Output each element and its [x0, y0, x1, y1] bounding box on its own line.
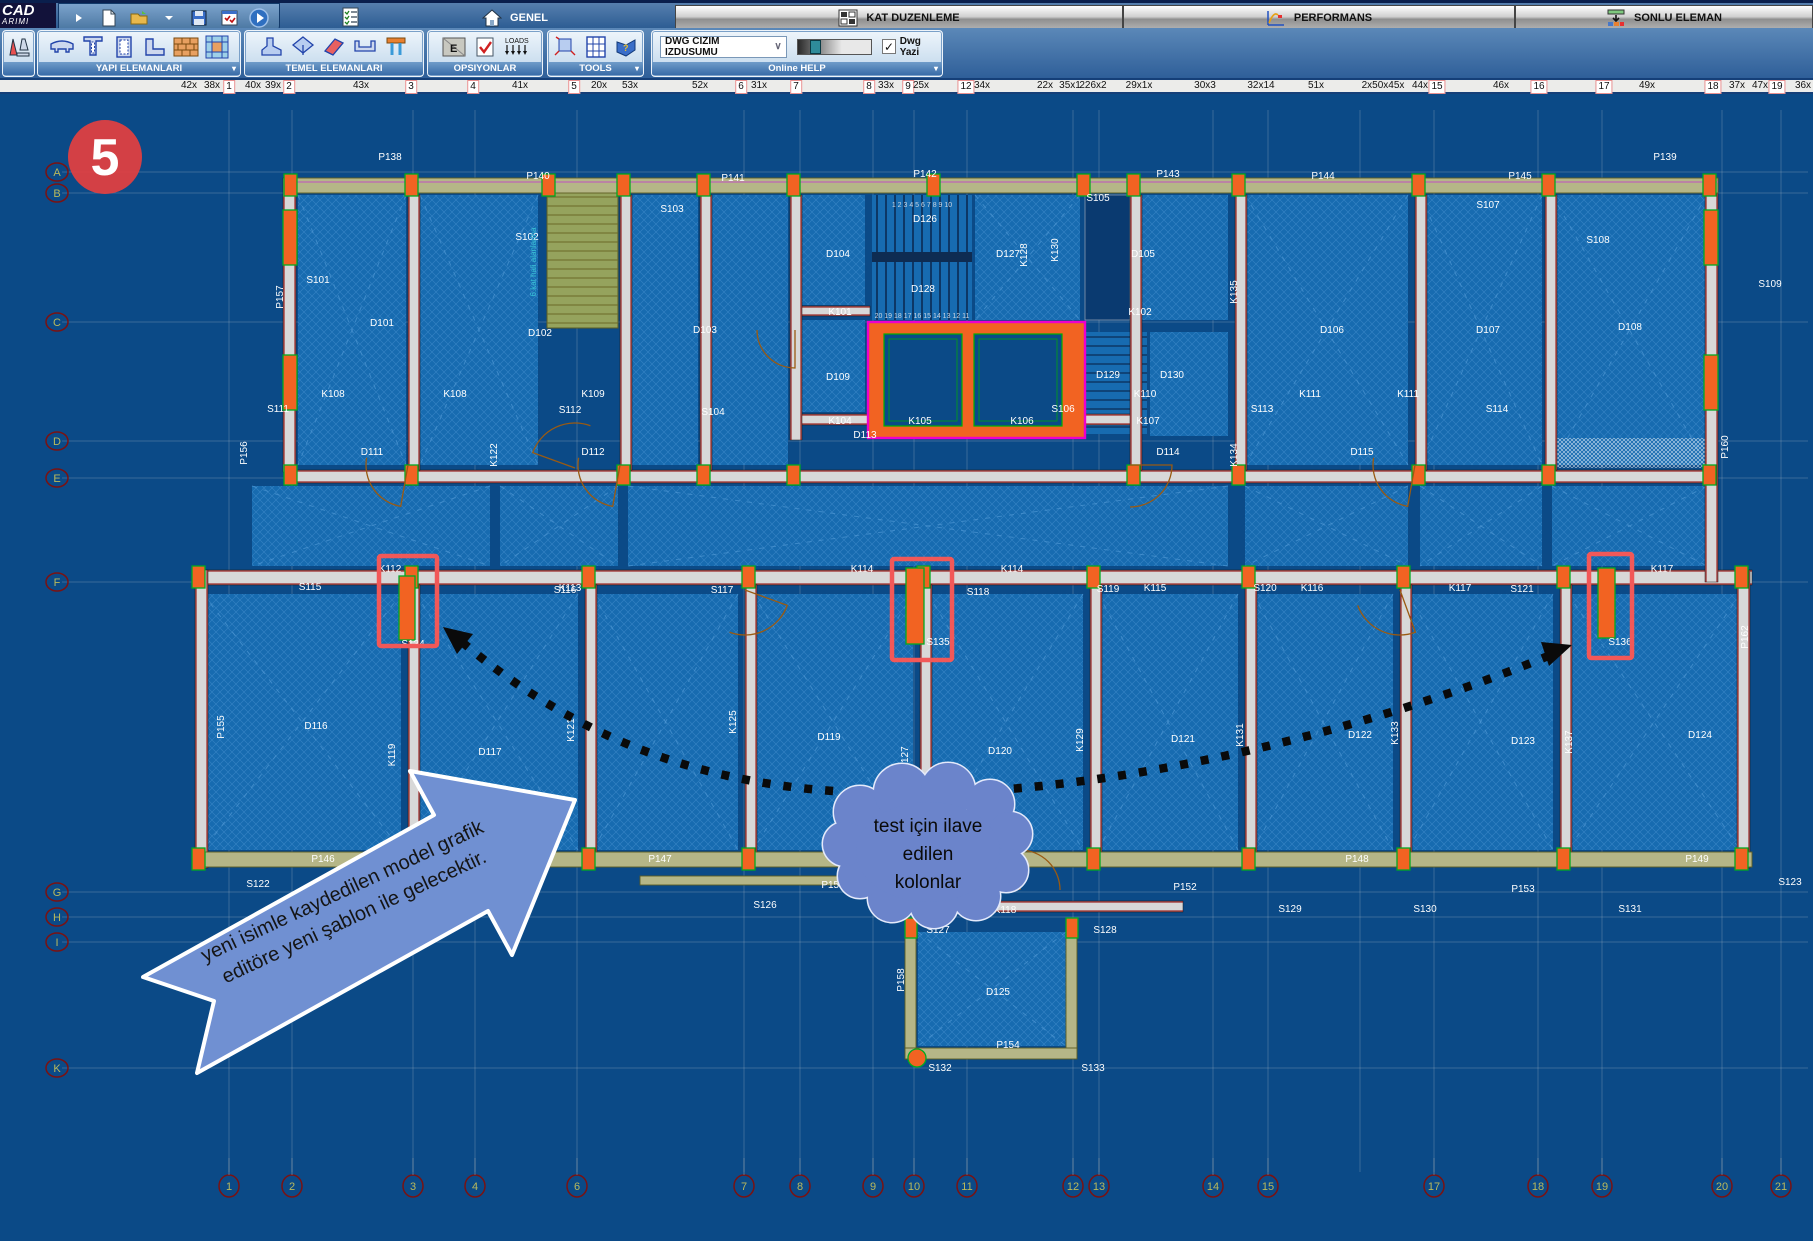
- svg-text:K107: K107: [1136, 416, 1160, 427]
- svg-text:S128: S128: [1093, 925, 1117, 936]
- svg-text:H: H: [53, 912, 61, 924]
- svg-text:D126: D126: [913, 214, 937, 225]
- svg-text:D112: D112: [581, 447, 605, 458]
- svg-text:D109: D109: [826, 372, 850, 383]
- svg-text:kolonlar: kolonlar: [895, 872, 962, 893]
- svg-text:A: A: [53, 167, 61, 179]
- svg-text:K115: K115: [1144, 583, 1167, 594]
- svg-text:K111: K111: [1397, 389, 1419, 400]
- svg-text:S130: S130: [1413, 904, 1437, 915]
- svg-text:S119: S119: [1097, 584, 1120, 595]
- svg-text:K121: K121: [566, 718, 577, 742]
- ruler-dimension: 2x50x45x: [1362, 80, 1405, 92]
- svg-text:K111: K111: [1299, 389, 1321, 400]
- svg-text:18: 18: [1532, 1181, 1544, 1193]
- ruler-dimension: 51x: [1308, 80, 1324, 92]
- svg-text:K109: K109: [581, 389, 605, 400]
- group-caption: YAPI ELEMANLARI: [38, 62, 240, 75]
- retaining-wall-tool-button[interactable]: [7, 34, 30, 60]
- dwg-text-checkbox[interactable]: ✓: [882, 39, 896, 54]
- svg-text:S129: S129: [1278, 904, 1302, 915]
- svg-text:D130: D130: [1160, 370, 1184, 381]
- ruler-dimension: 47x: [1752, 80, 1768, 92]
- ruler-dimension: 32x14: [1247, 80, 1274, 92]
- svg-text:K112: K112: [379, 564, 402, 575]
- svg-text:S117: S117: [711, 585, 734, 596]
- ruler-axis-number: 5: [568, 80, 580, 94]
- raft-footing-tool-button[interactable]: [321, 34, 347, 60]
- svg-text:C: C: [53, 317, 61, 329]
- svg-text:D119: D119: [817, 732, 841, 743]
- svg-text:D127: D127: [996, 249, 1020, 260]
- svg-text:P147: P147: [648, 854, 672, 865]
- loads-tool-button[interactable]: LOADS: [503, 34, 529, 60]
- axes-tool-button[interactable]: [552, 34, 578, 60]
- tab-performans-label: PERFORMANS: [1294, 12, 1372, 24]
- svg-text:P143: P143: [1156, 169, 1180, 180]
- drawing-canvas[interactable]: P138P140P141P142P143P144P145P139S101S102…: [0, 94, 1813, 1241]
- ribbon-group-temel-elemanlari: TEMEL ELEMANLARI: [244, 30, 424, 77]
- ruler-dimension: 34x: [974, 80, 990, 92]
- dwg-text-checkbox-label: Dwg Yazi: [900, 36, 938, 58]
- svg-text:10: 10: [908, 1181, 920, 1193]
- svg-text:K104: K104: [828, 416, 852, 427]
- ruler-dimension: 46x: [1493, 80, 1509, 92]
- svg-text:5: 5: [91, 129, 120, 187]
- svg-text:E: E: [450, 43, 457, 55]
- group-caption: TOOLS: [548, 62, 643, 75]
- ruler-dimension: 35x1: [1059, 80, 1081, 92]
- svg-text:S103: S103: [660, 204, 684, 215]
- ruler-dimension: 36x: [1795, 80, 1811, 92]
- svg-text:K102: K102: [1128, 307, 1152, 318]
- ruler-axis-number: 6: [735, 80, 747, 94]
- svg-text:S109: S109: [1758, 279, 1782, 290]
- ruler-dimension: 41x: [512, 80, 528, 92]
- ruler-axis-number: 7: [790, 80, 802, 94]
- svg-text:K117: K117: [1651, 564, 1674, 575]
- svg-text:P139: P139: [1653, 152, 1677, 163]
- svg-text:K116: K116: [1301, 583, 1324, 594]
- dimension-ruler: 42x38x140x39x243x3441x520x53x52x631x7833…: [0, 78, 1813, 94]
- svg-text:K: K: [53, 1063, 61, 1075]
- plan-elevator: [868, 322, 1085, 438]
- svg-text:3: 3: [410, 1181, 416, 1193]
- ruler-dimension: 29x1x: [1126, 80, 1153, 92]
- tab-sonlu-eleman-label: SONLU ELEMAN: [1634, 12, 1722, 24]
- svg-text:S114: S114: [1486, 404, 1509, 415]
- svg-text:B: B: [53, 188, 60, 200]
- svg-text:K101: K101: [828, 307, 852, 318]
- svg-text:P158: P158: [896, 968, 907, 992]
- ribbon-group-yapi-elemanlari: YAPI ELEMANLARI: [37, 30, 241, 77]
- svg-text:P156: P156: [239, 441, 250, 465]
- svg-text:D124: D124: [1688, 730, 1712, 741]
- group-caption: [3, 62, 34, 75]
- svg-text:P148: P148: [1345, 854, 1369, 865]
- svg-text:D128: D128: [911, 284, 935, 295]
- svg-text:D108: D108: [1618, 322, 1642, 333]
- ruler-dimension: 226x2: [1079, 80, 1106, 92]
- svg-text:D120: D120: [988, 746, 1012, 757]
- svg-text:D114: D114: [1156, 447, 1180, 458]
- svg-text:K128: K128: [1019, 243, 1030, 267]
- svg-text:K137: K137: [1564, 730, 1575, 754]
- svg-text:S133: S133: [1081, 1063, 1105, 1074]
- ruler-axis-number: 17: [1595, 80, 1612, 94]
- svg-text:K114: K114: [851, 564, 874, 575]
- floor-plan-svg: P138P140P141P142P143P144P145P139S101S102…: [0, 94, 1813, 1241]
- slider-handle[interactable]: [810, 40, 821, 54]
- ruler-dimension: 44x: [1412, 80, 1428, 92]
- svg-text:S108: S108: [1586, 235, 1610, 246]
- ribbon-group-tools: ? TOOLS: [547, 30, 644, 77]
- svg-text:S101: S101: [306, 275, 330, 286]
- svg-text:D103: D103: [693, 325, 717, 336]
- svg-text:G: G: [53, 887, 62, 899]
- group-caption: OPSIYONLAR: [428, 62, 542, 75]
- beam-tool-button[interactable]: [49, 34, 75, 60]
- ruler-axis-number: 16: [1530, 80, 1547, 94]
- svg-text:1 2 3 4 5 6 7 8 9 10: 1 2 3 4 5 6 7 8 9 10: [892, 202, 952, 209]
- svg-text:11: 11: [961, 1181, 972, 1193]
- home-icon: [482, 9, 502, 27]
- svg-text:D125: D125: [986, 987, 1010, 998]
- svg-text:12: 12: [1067, 1181, 1079, 1193]
- strip-footing-tool-button[interactable]: [352, 34, 378, 60]
- app-logo-line1: CAD: [2, 4, 52, 18]
- svg-text:P140: P140: [526, 171, 550, 182]
- svg-text:S122: S122: [246, 879, 270, 890]
- new-file-button[interactable]: [97, 7, 121, 29]
- svg-text:S135: S135: [926, 637, 950, 648]
- ruler-dimension: 42x: [181, 80, 197, 92]
- run-analysis-button[interactable]: [247, 7, 271, 29]
- svg-text:K131: K131: [1235, 723, 1246, 747]
- svg-text:K110: K110: [1134, 389, 1157, 400]
- svg-text:P149: P149: [1685, 854, 1709, 865]
- annotation-step-badge: 5: [68, 120, 142, 194]
- svg-text:K129: K129: [1075, 728, 1086, 752]
- title-bar: CAD ARIMI GENEL KAT DUZENLEME PERF: [0, 0, 1813, 28]
- app-logo: CAD ARIMI: [0, 3, 56, 31]
- ruler-axis-number: 2: [283, 80, 295, 94]
- svg-text:?: ?: [623, 43, 629, 53]
- svg-text:D106: D106: [1320, 325, 1344, 336]
- svg-text:S105: S105: [1086, 193, 1110, 204]
- ruler-axis-number: 4: [467, 80, 479, 94]
- storey-layout-icon: [838, 9, 858, 27]
- ruler-axis-number: 18: [1704, 80, 1721, 94]
- ruler-axis-number: 3: [405, 80, 417, 94]
- svg-text:S111: S111: [267, 404, 289, 415]
- svg-text:test için ilave: test için ilave: [874, 816, 983, 837]
- svg-text:K108: K108: [321, 389, 345, 400]
- svg-text:D105: D105: [1131, 249, 1155, 260]
- column-tool-button[interactable]: [80, 34, 106, 60]
- svg-text:F: F: [54, 577, 61, 589]
- app-logo-line2: ARIMI: [2, 18, 52, 26]
- material-editor-button[interactable]: E: [441, 34, 467, 60]
- svg-text:D115: D115: [1350, 447, 1374, 458]
- svg-text:15: 15: [1262, 1181, 1274, 1193]
- svg-text:S115: S115: [299, 582, 322, 593]
- svg-text:edilen: edilen: [903, 844, 954, 865]
- svg-text:D123: D123: [1511, 736, 1535, 747]
- finite-element-icon: [1606, 9, 1626, 27]
- svg-text:S112: S112: [559, 405, 582, 416]
- ruler-dimension: 25x: [913, 80, 929, 92]
- svg-text:S106: S106: [1051, 404, 1075, 415]
- svg-text:P153: P153: [1511, 884, 1535, 895]
- group-caption: TEMEL ELEMANLARI: [245, 62, 423, 75]
- svg-text:21: 21: [1775, 1181, 1787, 1193]
- svg-text:K114: K114: [1001, 564, 1024, 575]
- svg-text:K117: K117: [1449, 583, 1472, 594]
- open-caret-icon[interactable]: [157, 7, 181, 29]
- ruler-dimension: 52x: [692, 80, 708, 92]
- svg-text:2: 2: [289, 1181, 295, 1193]
- svg-text:14: 14: [1207, 1181, 1219, 1193]
- ribbon: YAPI ELEMANLARI TEMEL ELEMANLARI E LOADS…: [0, 28, 1813, 78]
- svg-text:P141: P141: [721, 173, 745, 184]
- ruler-dimension: 22x: [1037, 80, 1053, 92]
- open-file-button[interactable]: [127, 7, 151, 29]
- app-window: CAD ARIMI GENEL KAT DUZENLEME PERF: [0, 0, 1813, 1241]
- svg-text:K106: K106: [1010, 416, 1034, 427]
- svg-text:D: D: [53, 436, 61, 448]
- svg-text:D111: D111: [361, 447, 384, 458]
- svg-text:S132: S132: [928, 1063, 952, 1074]
- ruler-dimension: 37x: [1729, 80, 1745, 92]
- svg-text:D122: D122: [1348, 730, 1372, 741]
- ruler-dimension: 43x: [353, 80, 369, 92]
- svg-text:P146: P146: [311, 854, 335, 865]
- svg-text:D102: D102: [528, 328, 552, 339]
- svg-text:7: 7: [741, 1181, 747, 1193]
- svg-text:S116: S116: [554, 585, 577, 596]
- svg-text:D116: D116: [304, 721, 328, 732]
- svg-text:D113: D113: [853, 430, 877, 441]
- svg-text:P154: P154: [996, 1040, 1020, 1051]
- ruler-dimension: 39x: [265, 80, 281, 92]
- ruler-axis-number: 8: [863, 80, 875, 94]
- svg-text:D107: D107: [1476, 325, 1500, 336]
- pile-tool-button[interactable]: [383, 34, 409, 60]
- svg-text:1: 1: [226, 1181, 232, 1193]
- ruler-dimension: 53x: [622, 80, 638, 92]
- svg-text:K133: K133: [1390, 721, 1401, 745]
- svg-text:S121: S121: [1510, 584, 1534, 595]
- svg-text:S104: S104: [701, 407, 725, 418]
- svg-text:8: 8: [797, 1181, 803, 1193]
- svg-text:S120: S120: [1253, 583, 1277, 594]
- svg-text:D121: D121: [1171, 734, 1195, 745]
- ruler-dimension: 38x: [204, 80, 220, 92]
- svg-text:P145: P145: [1508, 171, 1532, 182]
- ruler-dimension: 30x3: [1194, 80, 1216, 92]
- polywall-tool-button[interactable]: [142, 34, 168, 60]
- svg-text:K122: K122: [489, 443, 500, 467]
- svg-text:E: E: [53, 473, 60, 485]
- ribbon-group-online-help: DWG CIZIM IZDUSUMU ✓ Dwg Yazi Online HEL…: [651, 30, 943, 77]
- svg-text:4: 4: [472, 1181, 478, 1193]
- svg-text:P144: P144: [1311, 171, 1335, 182]
- help-book-button[interactable]: ?: [613, 34, 639, 60]
- dwg-opacity-slider[interactable]: [797, 39, 873, 55]
- svg-text:6: 6: [574, 1181, 580, 1193]
- tab-kat-duzenleme-label: KAT DUZENLEME: [866, 12, 959, 24]
- svg-text:K135: K135: [1229, 280, 1240, 304]
- svg-text:S123: S123: [1778, 877, 1802, 888]
- svg-text:19: 19: [1596, 1181, 1608, 1193]
- expand-arrow-icon[interactable]: [67, 7, 91, 29]
- svg-text:S136: S136: [1608, 637, 1632, 648]
- masonry-wall-tool-button[interactable]: [173, 34, 199, 60]
- options-check-button[interactable]: [472, 34, 498, 60]
- ruler-dimension: 40x: [245, 80, 261, 92]
- ruler-axis-number: 15: [1428, 80, 1445, 94]
- ruler-axis-number: 1: [223, 80, 235, 94]
- pad-footing-tool-button[interactable]: [290, 34, 316, 60]
- svg-text:K105: K105: [908, 416, 932, 427]
- project-settings-button[interactable]: [217, 7, 241, 29]
- svg-text:LOADS: LOADS: [505, 38, 529, 45]
- ruler-dimension: 49x: [1639, 80, 1655, 92]
- svg-text:S131: S131: [1618, 904, 1642, 915]
- svg-text:13: 13: [1093, 1181, 1105, 1193]
- ruler-axis-number: 19: [1768, 80, 1785, 94]
- svg-text:D117: D117: [478, 747, 502, 758]
- svg-text:9: 9: [870, 1181, 876, 1193]
- ruler-dimension: 33x: [878, 80, 894, 92]
- svg-text:D129: D129: [1096, 370, 1120, 381]
- svg-text:P152: P152: [1173, 882, 1197, 893]
- svg-text:P138: P138: [378, 152, 402, 163]
- slab-tool-button[interactable]: [204, 34, 230, 60]
- svg-text:I: I: [55, 937, 58, 949]
- ribbon-group-opsiyonlar: E LOADS OPSIYONLAR: [427, 30, 543, 77]
- performance-chart-icon: [1266, 9, 1286, 27]
- svg-text:D101: D101: [370, 318, 394, 329]
- plan-stair-hatched: [547, 182, 618, 328]
- ruler-dimension: 31x: [751, 80, 767, 92]
- grid-window-tool-button[interactable]: [583, 34, 609, 60]
- ruler-dimension: 20x: [591, 80, 607, 92]
- svg-text:D104: D104: [826, 249, 850, 260]
- single-footing-tool-button[interactable]: [259, 34, 285, 60]
- svg-text:S126: S126: [753, 900, 777, 911]
- svg-text:20 19 18 17 16 15 14 13 12 11: 20 19 18 17 16 15 14 13 12 11: [875, 313, 970, 320]
- svg-text:6.kat hali alanlarina: 6.kat hali alanlarina: [529, 227, 538, 296]
- svg-text:K108: K108: [443, 389, 467, 400]
- svg-text:S107: S107: [1476, 200, 1500, 211]
- group-caption: Online HELP: [652, 62, 942, 75]
- dwg-projection-value: DWG CIZIM IZDUSUMU: [665, 36, 774, 58]
- dwg-projection-select[interactable]: DWG CIZIM IZDUSUMU: [660, 36, 787, 58]
- svg-text:K125: K125: [728, 710, 739, 734]
- svg-text:P142: P142: [913, 169, 937, 180]
- svg-text:P162: P162: [1740, 625, 1751, 649]
- svg-text:17: 17: [1428, 1181, 1440, 1193]
- svg-text:P160: P160: [1720, 435, 1731, 459]
- svg-text:20: 20: [1716, 1181, 1728, 1193]
- save-button[interactable]: [187, 7, 211, 29]
- svg-text:S113: S113: [1251, 404, 1274, 415]
- svg-text:S118: S118: [967, 587, 990, 598]
- ribbon-group-misc: [2, 30, 35, 77]
- tab-genel-label: GENEL: [510, 12, 548, 24]
- shearwall-tool-button[interactable]: [111, 34, 137, 60]
- svg-text:K130: K130: [1050, 238, 1061, 262]
- svg-text:P157: P157: [275, 285, 286, 309]
- svg-text:K119: K119: [387, 743, 398, 766]
- ruler-axis-number: 12: [957, 80, 974, 94]
- svg-text:P155: P155: [216, 715, 227, 739]
- svg-text:K134: K134: [1229, 443, 1240, 467]
